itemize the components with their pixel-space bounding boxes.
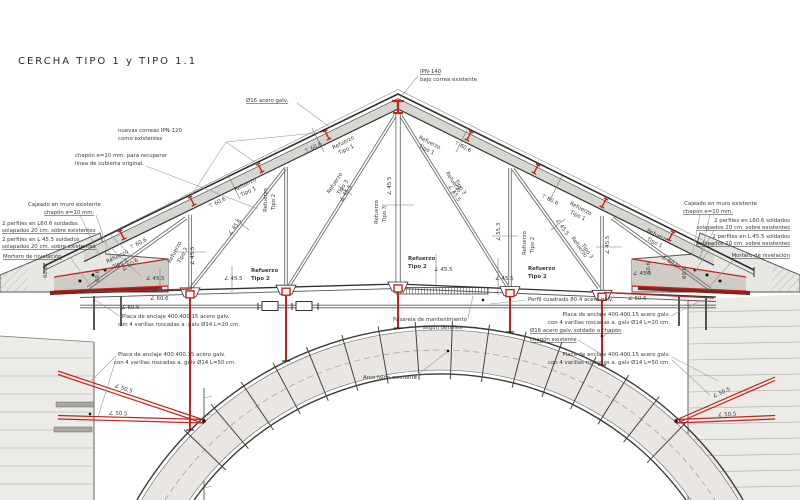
- label-o16-soldado: Ø16 acero galv. soldado a chapón: [530, 327, 622, 334]
- label-placa20-right-1: Placa de anclaje 400.400.15 acero galv.: [563, 312, 671, 318]
- dim-l606-2: ∠ 60.6: [121, 305, 140, 311]
- label-perf60-left-2: solapados 20 cm. sobre existentes: [2, 228, 96, 234]
- dim-606-heel-l2: 60.6: [95, 269, 101, 282]
- label-chapon-2: línea de cubierta original.: [75, 160, 144, 167]
- truss-drawing: CERCHA TIPO 1 y TIPO 1.1 IPN-140 bajo co…: [0, 0, 800, 500]
- label-perf45-right-2: solapados 20 cm. sobre existentes: [696, 241, 790, 247]
- label-pasarela-2: según detalles: [423, 324, 463, 331]
- label-placa50-right-2: con 4 varillas roscadas a. galv Ø14 L=50…: [548, 359, 670, 366]
- label-kingpost-1: Refuerzo: [374, 200, 380, 224]
- label-ipn140: IPN-140: [420, 69, 442, 75]
- label-perf45-left-2: solapados 20 cm. sobre existentes: [2, 244, 96, 250]
- dim-l455-v2: ∠ 45.5: [387, 177, 393, 196]
- label-perf45-right-1: 2 perfiles en L 45.5 soldados: [712, 234, 790, 240]
- label-correas-2: como existentes: [118, 136, 163, 142]
- label-refuerzo2-l1: Refuerzo: [263, 188, 269, 212]
- page-title: CERCHA TIPO 1 y TIPO 1.1: [18, 56, 197, 67]
- walkway: [396, 288, 488, 295]
- label-placa50-left-1: Placa de anclaje 400.400.15 acero galv.: [118, 352, 226, 358]
- label-perfil-cuadrado: Perfil cuadrado 80.4 acero galv.: [528, 297, 614, 303]
- dim-606-heel-l1: 60.6: [43, 265, 49, 278]
- label-bottom-refuerzo2-b1: Refuerzo: [408, 256, 435, 262]
- label-bottom-refuerzo2-a2: Tipo 2: [251, 276, 270, 282]
- truss-verticals: [189, 114, 604, 291]
- dim-606-heel-r2: 60.6: [682, 266, 688, 279]
- dim-l553: ∠ 55.3: [496, 223, 502, 242]
- label-arco: Arco fajón existente: [363, 374, 418, 381]
- arch-band: [137, 321, 743, 500]
- label-cajeado-left-1: Cajeado en muro existente: [28, 202, 102, 208]
- label-mortero-left: Mortero de nivelación: [3, 253, 62, 260]
- label-cajeado-right-2: chapón e=10 mm.: [683, 208, 733, 215]
- label-bottom-refuerzo2-b2: Tipo 2: [408, 264, 427, 270]
- label-cajeado-left-2: chapón e=10 mm.: [44, 209, 94, 216]
- label-refuerzo2-r2: Tipo 2: [530, 237, 536, 255]
- label-kingpost-2: Tipo 3: [382, 206, 388, 224]
- dim-l455-v3: ∠ 45.5: [605, 236, 611, 255]
- label-o16: Ø16 acero galv.: [246, 97, 289, 104]
- label-placa20-left-2: con 4 varillas roscadas a. galv Ø14 L=20…: [118, 321, 240, 328]
- label-mortero-right: Mortero de nivelación: [731, 252, 790, 259]
- label-placa50-right-1: Placa de anclaje 400.400.15 acero galv.: [563, 352, 671, 358]
- label-perf60-right-2: solapados 20 cm. sobre existentes: [696, 225, 790, 231]
- dim-l505-r2: ∠ 50.5: [718, 412, 737, 419]
- dim-l455-b1: ∠ 45.5: [146, 276, 165, 282]
- label-cajeado-right-1: Cajeado en muro existente: [684, 201, 758, 207]
- label-pasarela-1: Pasarela de mantenimiento: [393, 317, 467, 323]
- label-ipn140-sub: bajo correa existente: [420, 77, 478, 83]
- label-chapon-1: chapón e=10 mm. para recuperar: [75, 152, 168, 159]
- label-placa20-right-2: con 4 varillas roscadas a. galv Ø14 L=20…: [548, 319, 670, 326]
- label-bottom-refuerzo2-c2: Tipo 2: [528, 274, 547, 280]
- dim-l606-1: ∠ 60.6: [150, 296, 169, 302]
- dim-t606-4: ⊤ 60.6: [540, 193, 560, 207]
- label-chapon-existente: chapón existente: [530, 336, 577, 343]
- drawing-sheet: CERCHA TIPO 1 y TIPO 1.1 IPN-140 bajo co…: [0, 0, 800, 500]
- dim-l455-b2: ∠ 45.5: [224, 276, 243, 282]
- dim-l505-l2: ∠ 50.5: [109, 411, 128, 418]
- turnbuckle: [258, 302, 318, 311]
- label-placa20-left-1: Placa de anclaje 400.400.15 acero galv.: [122, 314, 230, 320]
- label-placa50-left-2: con 4 varillas roscadas a. galv Ø14 L=50…: [114, 359, 236, 366]
- label-correas-1: nuevas correas IPN-120: [118, 128, 182, 134]
- dim-l455-v1: ∠ 45.5: [190, 247, 196, 266]
- label-perf60-right-1: 2 perfiles en L60.6 soldados: [714, 218, 790, 224]
- purlin-clips: [118, 130, 675, 241]
- dim-l455-b4: ∠ 45.5: [495, 276, 514, 282]
- label-bottom-refuerzo2-a1: Refuerzo: [251, 268, 278, 274]
- label-perf60-left-1: 2 perfiles en L60.6 soldados: [2, 221, 78, 227]
- label-refuerzo2-l2: Tipo 2: [271, 194, 277, 212]
- dim-l455-b3: ∠ 45.5: [434, 267, 453, 273]
- label-refuerzo2-r1: Refuerzo: [522, 231, 528, 255]
- dim-606-heel-r1: 60.6: [646, 261, 652, 274]
- label-bottom-refuerzo2-c1: Refuerzo: [528, 266, 555, 272]
- label-perf45-left-1: 2 perfiles en L 45.5 soldados: [2, 237, 80, 243]
- dim-l606-3: ∠ 60.6: [628, 296, 647, 302]
